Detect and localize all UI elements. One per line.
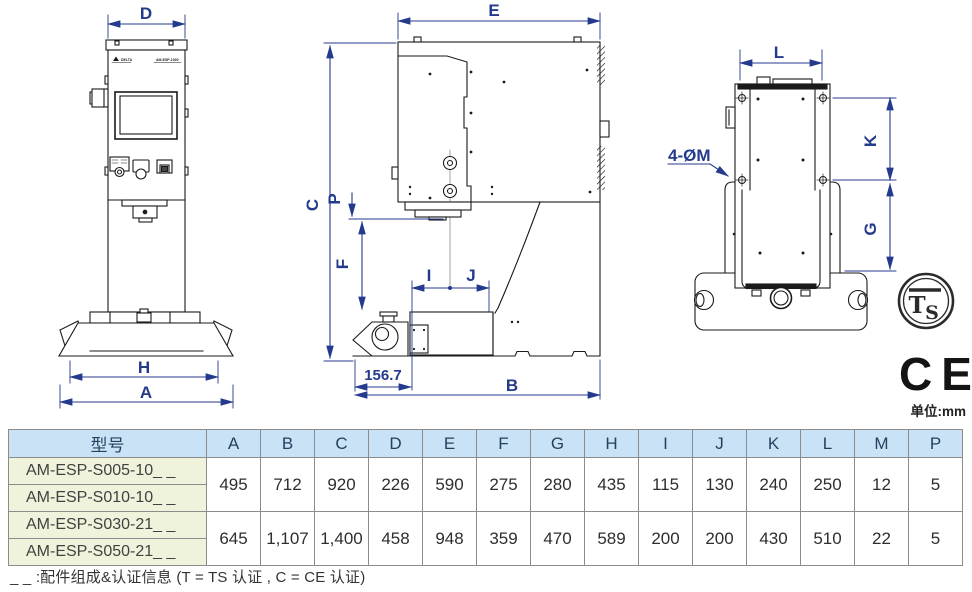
col-header-c: C	[315, 430, 369, 458]
vent-hatch	[597, 45, 605, 85]
dim-value-cell: 359	[477, 512, 531, 566]
dim-label-b: B	[506, 376, 518, 395]
front-view-drawing: DELTA AM-ESP-1000 D H A	[59, 4, 233, 408]
dim-label-e: E	[488, 1, 499, 20]
dim-value-cell: 645	[207, 512, 261, 566]
dim-label-throat: 156.7	[364, 367, 402, 384]
table-header-row: 型号 A B C D E F G H I J K L M P	[9, 430, 963, 458]
dim-value-cell: 5	[909, 458, 963, 512]
vent-hatch	[597, 146, 605, 190]
dim-value-cell: 1,400	[315, 512, 369, 566]
col-header-e: E	[423, 430, 477, 458]
dim-value-cell: 435	[585, 458, 639, 512]
ce-mark: CE	[899, 348, 972, 400]
nameplate-brand: DELTA	[121, 58, 133, 62]
ts-certification-logo: T S	[899, 274, 953, 328]
dim-value-cell: 920	[315, 458, 369, 512]
dim-label-i: I	[427, 266, 432, 285]
dim-value-cell: 5	[909, 512, 963, 566]
dim-value-cell: 130	[693, 458, 747, 512]
col-header-l: L	[801, 430, 855, 458]
technical-drawings: DELTA AM-ESP-1000 D H A	[0, 0, 972, 427]
nameplate-model: AM-ESP-1000	[156, 58, 179, 62]
dim-value-cell: 12	[855, 458, 909, 512]
dim-value-cell: 250	[801, 458, 855, 512]
ts-logo-letter-s: S	[925, 302, 939, 324]
dim-value-cell: 200	[639, 512, 693, 566]
dim-value-cell: 712	[261, 458, 315, 512]
dim-label-a: A	[140, 383, 152, 402]
model-cell: AM-ESP-S030-21_ _	[9, 512, 207, 539]
dim-label-f: F	[333, 259, 352, 269]
dim-label-c: C	[303, 199, 322, 211]
footnote: _ _ :配件组成&认证信息 (T = TS 认证 , C = CE 认证)	[10, 566, 365, 587]
dim-label-g: G	[861, 222, 880, 235]
model-cell: AM-ESP-S005-10_ _	[9, 458, 207, 485]
dim-value-cell: 22	[855, 512, 909, 566]
dim-label-d: D	[140, 4, 152, 23]
dim-value-cell: 1,107	[261, 512, 315, 566]
col-header-k: K	[747, 430, 801, 458]
dim-value-cell: 430	[747, 512, 801, 566]
datasheet-page: DELTA AM-ESP-1000 D H A	[0, 0, 972, 592]
unit-note: 单位:mm	[910, 403, 966, 419]
ts-logo-letter-t: T	[908, 292, 925, 319]
dim-label-k: K	[861, 134, 880, 147]
dim-label-j: J	[466, 266, 475, 285]
dim-value-cell: 589	[585, 512, 639, 566]
dim-value-cell: 226	[369, 458, 423, 512]
dim-value-cell: 510	[801, 512, 855, 566]
col-header-p: P	[909, 430, 963, 458]
dim-value-cell: 280	[531, 458, 585, 512]
col-header-model: 型号	[9, 430, 207, 458]
col-header-i: I	[639, 430, 693, 458]
model-cell: AM-ESP-S050-21_ _	[9, 539, 207, 566]
dim-value-cell: 590	[423, 458, 477, 512]
dim-label-holes: 4-ØM	[668, 146, 711, 165]
dim-value-cell: 948	[423, 512, 477, 566]
dim-value-cell: 495	[207, 458, 261, 512]
table-row: AM-ESP-S030-21_ _ 645 1,107 1,400 458 94…	[9, 512, 963, 539]
dim-value-cell: 240	[747, 458, 801, 512]
dim-value-cell: 470	[531, 512, 585, 566]
dim-value-cell: 458	[369, 512, 423, 566]
model-cell: AM-ESP-S010-10_ _	[9, 485, 207, 512]
side-view-drawing: E C P F I J 156.7 B	[303, 1, 609, 399]
dim-label-l: L	[774, 43, 784, 62]
dim-label-p: P	[325, 193, 344, 204]
dimension-table: 型号 A B C D E F G H I J K L M P AM-ESP-S0…	[8, 429, 963, 566]
col-header-h: H	[585, 430, 639, 458]
col-header-d: D	[369, 430, 423, 458]
col-header-m: M	[855, 430, 909, 458]
col-header-f: F	[477, 430, 531, 458]
col-header-b: B	[261, 430, 315, 458]
top-view-drawing: L K G 4-ØM	[668, 43, 896, 330]
dim-value-cell: 275	[477, 458, 531, 512]
dim-value-cell: 115	[639, 458, 693, 512]
dim-value-cell: 200	[693, 512, 747, 566]
col-header-g: G	[531, 430, 585, 458]
dim-label-h: H	[138, 358, 150, 377]
table-row: AM-ESP-S005-10_ _ 495 712 920 226 590 27…	[9, 458, 963, 485]
col-header-a: A	[207, 430, 261, 458]
col-header-j: J	[693, 430, 747, 458]
